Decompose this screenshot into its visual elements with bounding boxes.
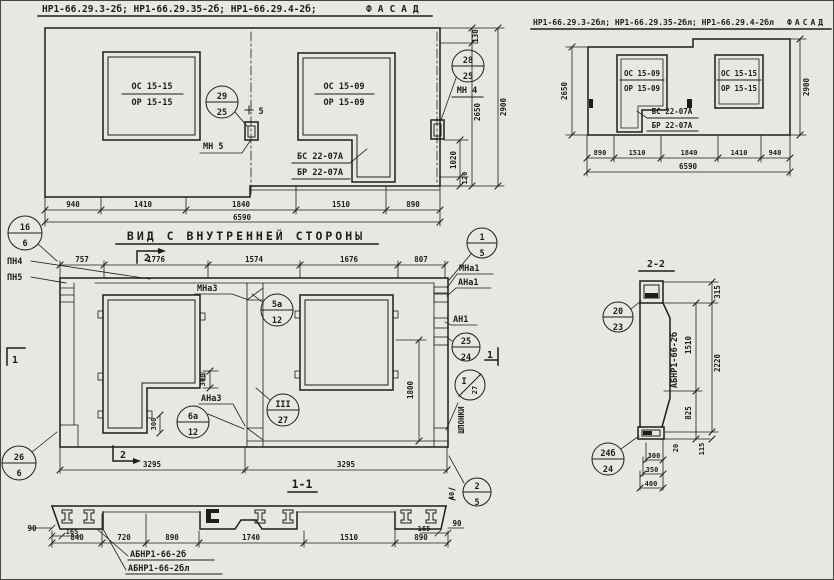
dim-1410: 1410 [134,200,153,209]
dim-1510: 1510 [684,335,693,354]
facade-left-title: НР1-66.29.3-2б; НР1-66.29.35-2б; НР1-66.… [42,4,317,15]
dim-1740: 1740 [242,533,261,542]
callout-2-5-leader [449,456,464,483]
facade-right-window2-frame [719,59,759,104]
callout-28-25-den: 25 [463,72,473,82]
dim-840: 840 [70,533,84,542]
section-2-arrow-top [158,248,166,254]
inner-window-right [300,295,393,390]
dim-total-6590: 6590 [233,213,252,222]
label-pn5: ПН5 [7,273,22,283]
connector-mid-right-a [434,318,448,328]
callout-29-25-leader [235,112,247,126]
dim-720: 720 [117,533,131,542]
dim-890-b: 890 [414,533,428,542]
facade-right-balcony-mark-num: БС 22-07А [652,107,693,116]
dim-807: 807 [414,255,428,264]
dim-890-a: 890 [165,533,179,542]
dim-757: 757 [75,255,89,264]
callout-24b-24-leader [621,436,639,449]
label-mn5: МН 5 [203,142,223,152]
label-ana3-leader [199,404,245,426]
facade-right-window1-mark-num: ОС 15-09 [624,69,661,78]
callout-28-25-leader [441,78,456,120]
facade-right-title: НР1-66.29.3-2бл; НР1-66.29.35-2бл; НР1-6… [533,17,774,27]
dim-1676: 1676 [340,255,359,264]
dim-940: 940 [66,200,80,209]
dim-350: 350 [646,466,659,474]
section-2-arrow-bottom [133,458,141,464]
panel-left-edge [60,283,78,447]
panel-mark-vertical: АБНР1-66-2б [669,332,680,388]
callout-16-6-num: 16 [20,223,30,233]
pn-leaders [31,261,150,283]
facade-right-drawing: НР1-66.29.3-2бл; НР1-66.29.35-2бл; НР1-6… [531,17,831,176]
connector-top-right-b [434,294,448,302]
dim-total-6590: 6590 [679,162,698,171]
callout-26-6-num: 26 [14,453,24,463]
dim-1510: 1510 [629,149,646,157]
dim-315: 315 [713,285,722,299]
facade-right-balcony-mark-den: БР 22-07А [652,121,693,130]
dim-2650: 2650 [560,81,569,100]
dim-825: 825 [684,406,693,420]
dim-2900: 2900 [802,77,811,96]
label-shponki: ШПОНКИ [457,406,466,434]
facade-right-window2-mark-den: ОР 15-15 [721,84,757,93]
dim-3295-a: 3295 [143,460,161,469]
panel-mark-a: АБНР1-66-2б [130,549,186,560]
facade-left-axes [251,32,437,196]
dim-1410: 1410 [731,149,748,157]
callout-I-27-num: I [461,377,466,387]
callout-29-25-num: 29 [217,92,227,102]
callout-III-27-den: 27 [278,416,288,426]
facade-left-window1 [103,52,200,140]
facade-left-window1-mark-den: ОР 15-15 [132,98,173,108]
dim-3295-b: 3295 [337,460,355,469]
top-block-fill [645,293,658,298]
callout-20-23-num: 20 [613,307,623,317]
dim-400: 400 [645,480,658,488]
dim-300b: 300 [150,418,158,431]
facade-left-balcony-mark-num: БС 22-07А [297,152,343,162]
callout-1-5-den: 5 [479,249,484,259]
dim-1840: 1840 [232,200,251,209]
embed-mark-mid [687,99,692,108]
facade-left-window1-mark-num: ОС 15-15 [132,82,173,92]
dim-2220: 2220 [713,353,722,372]
dim-1800: 1800 [406,380,415,399]
inner-view-drawing: ВИД С ВНУТРЕННЕЙ СТОРОНЫ 16 6 ПН4 ПН5 75… [2,216,498,508]
callout-2-5-num: 2 [474,482,479,492]
callout-2-5-den: 5 [474,498,479,508]
facade-left-drawing: НР1-66.29.3-2б; НР1-66.29.35-2б; НР1-66.… [38,4,508,226]
dim-115: 115 [698,443,706,456]
facade-right-window1-mark-den: ОР 15-09 [624,84,661,93]
sheet-border [1,1,834,580]
callout-29-25-den: 25 [217,108,227,118]
web-outline [640,303,670,427]
section-channel-glyph [206,509,219,523]
dim-1510: 1510 [340,533,359,542]
callout-6a-12-leader [208,414,244,429]
callout-6a-12-num: 6а [188,412,198,422]
dim-2900: 2900 [499,97,508,116]
callout-28-25-num: 28 [463,56,473,66]
label-mn4: МН 4 [457,86,477,96]
middle-rib [247,283,263,447]
callout-6a-12-den: 12 [188,428,198,438]
facade-left-window2-mark-num: ОС 15-09 [324,82,365,92]
label-ana1: АНа1 [458,278,478,288]
left-dim-ext [566,47,588,135]
top-block [640,281,663,303]
dim-90-right: 90 [452,519,462,528]
section-2-label-top: 2 [144,253,150,264]
blueprint-sheet: НР1-66.29.3-2б; НР1-66.29.35-2б; НР1-66.… [0,0,834,580]
dim-120: 120 [461,172,469,185]
inner-window-left [103,295,200,433]
dim-1020: 1020 [449,150,458,169]
label-pn4: ПН4 [7,257,22,267]
section-1-1-drawing: 1-1 90 165 165 90 840 720 890 1740 1510 … [27,477,464,574]
dim-890: 890 [406,200,420,209]
inner-view-title: ВИД С ВНУТРЕННЕЙ СТОРОНЫ [127,228,365,243]
panel-outline [60,278,448,447]
dim-1510: 1510 [332,200,351,209]
callout-24b-24-num: 24б [600,448,615,459]
callout-20-23-den: 23 [613,323,623,333]
dim-940: 940 [769,149,782,157]
section-1-label-left: 1 [12,355,18,366]
inner-window-left-frame [108,300,195,428]
label-an1: АН1 [453,315,468,325]
dim-300a: 300 [199,374,207,387]
connector-mid-right-b [434,337,448,345]
callout-I-27-den: 27 [471,386,479,394]
callout-5a-12-num: 5а [272,300,282,310]
section-1-1-title: 1-1 [292,477,313,491]
bottom-dim-ext [60,447,447,473]
embed-mark-left [589,99,593,108]
dim-20: 20 [672,444,680,452]
callout-16-6-den: 6 [22,239,27,249]
callout-16-6-leader [38,244,57,261]
dim-90-left: 90 [27,524,37,533]
weld-mark: 5 [258,107,263,117]
section-2-2-title: 2-2 [647,259,665,270]
weld-cross-icon [245,106,253,114]
facade-right-title-view: ФАСАД [787,18,826,27]
label-ana3: АНа3 [201,394,221,404]
callout-26-6-leader [32,432,57,452]
inner-window-right-frame [305,300,388,385]
dim-2650: 2650 [473,102,482,121]
facade-right-window2 [715,55,763,108]
facade-right-window2-mark-num: ОС 15-15 [721,69,757,78]
dim-300: 300 [648,452,661,460]
facade-left-title-view: ФАСАД [366,4,425,15]
dim-1840: 1840 [681,149,698,157]
callout-26-6-den: 6 [16,469,21,479]
bottom-block-fill [643,431,652,435]
callout-5a-12-den: 12 [272,316,282,326]
label-ana1-leader [447,288,491,296]
dim-165-right: 165 [418,525,431,533]
label-mna3-leader [195,294,246,299]
facade-left-window2-mark-den: ОР 15-09 [324,98,365,108]
callout-25-24-den: 24 [461,353,471,363]
dim-40: 40 [448,492,456,500]
embed-mn5-inner [248,126,255,137]
dim-130: 130 [471,29,480,43]
label-mna3: МНа3 [197,284,217,294]
section-2-2-drawing: 2-2 АБНР1-66-2б 20 23 24б 24 315 1510 22… [592,259,722,491]
callout-24b-24-den: 24 [603,465,613,475]
dim-890: 890 [594,149,607,157]
callout-1-5-num: 1 [479,233,484,243]
section-2-label-bottom: 2 [120,450,126,461]
facade-left-balcony-mark-den: БР 22-07А [297,168,343,178]
label-mna1: МНа1 [459,264,479,274]
callout-5a-12-leader [252,294,262,302]
connector-top-right-a [434,287,448,293]
dim-1574: 1574 [245,255,264,264]
section-1-label-right: 1 [487,350,493,361]
callout-25-24-num: 25 [461,337,471,347]
facade-left-window1-frame [108,57,195,135]
section-left-block [52,506,103,529]
panel-mark-b: АБНР1-66-2бл [128,563,189,574]
callout-III-27-num: III [275,400,290,410]
